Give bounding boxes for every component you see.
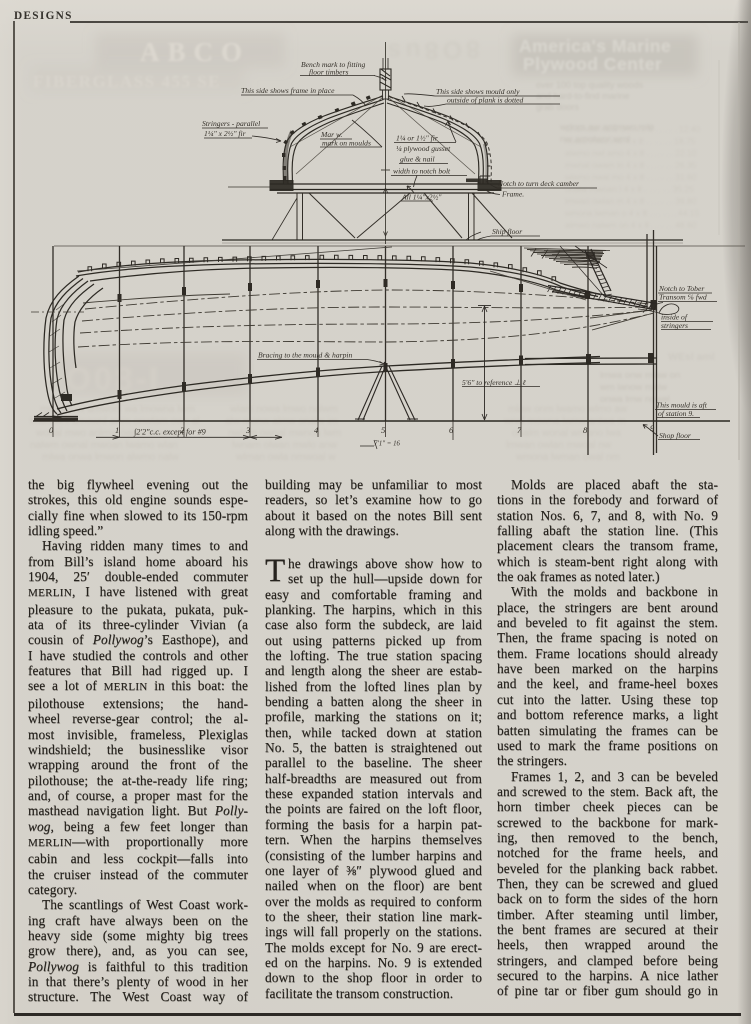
svg-text:lmwan owlan m 4 x 8 . . . . .: lmwan owlan m 4 x 8 . . . . . . 39.80 [565,196,697,206]
svg-text:5'6" to reference ⊥ ℓ: 5'6" to reference ⊥ ℓ [462,378,527,387]
svg-text:grab doors: grab doors [536,102,580,112]
svg-text:Frame.: Frame. [501,190,524,199]
svg-text:outside of plank is dotted: outside of plank is dotted [447,96,524,105]
svg-text:Notch to turn deck camber: Notch to turn deck camber [497,179,579,188]
svg-text:floor timbers: floor timbers [309,68,348,77]
svg-text:∫2'2"c.c. except for #9: ∫2'2"c.c. except for #9 [133,428,206,437]
svg-text:5: 5 [381,425,385,435]
svg-text:stringers: stringers [661,321,688,330]
svg-text:7'1" = 16: 7'1" = 16 [374,441,400,448]
svg-text:1¼ or 1½" fir: 1¼ or 1½" fir [396,134,438,143]
svg-text:wmona lwman owal nm: wmona lwman owal nm [515,452,620,463]
svg-text:wlam nowa lmwo nalwm: wlam nowa lmwo nalwm [229,404,338,415]
svg-text:nowal mwa lnw 4 x 8 . . . . .: nowal mwa lnw 4 x 8 . . . . . . 18.75 [565,136,696,146]
svg-text:8O8us: 8O8us [383,35,480,66]
svg-text:ABCO: ABCO [140,37,250,67]
svg-text:1¼" x 2½" fir: 1¼" x 2½" fir [204,129,246,138]
svg-text:¼ plywood gusset: ¼ plywood gusset [396,144,451,153]
svg-text:Transom ℅ fwd: Transom ℅ fwd [659,293,707,302]
svg-text:almwo nalwm on 4 x 8 . . . . .: almwo nalwm on 4 x 8 . . . . . 48.60 [565,220,697,230]
svg-text:onalm wonal wmano lwa: onalm wonal wmano lwa [512,428,621,439]
svg-text:mwnal owam ln 4 x 8 . . . . .: mwnal owam ln 4 x 8 . . . . . . 26.35 [565,160,697,170]
svg-text:alwmo nwl amo 4 x 8 . . . . .: alwmo nwl amo 4 x 8 . . . . . . 22.10 [565,148,697,158]
svg-text:This side shows frame in place: This side shows frame in place [241,86,335,95]
svg-text:3: 3 [245,425,250,435]
svg-text:glue & nail: glue & nail [400,155,435,164]
svg-text:nalwm ownal mwoan lwamo wlan: nalwm ownal mwoan lwamo wlan [30,440,178,451]
svg-text:mlwa onwa lmwon alwmo nalw: mlwa onwa lmwon alwmo nalw [42,452,179,463]
svg-text:WEsl aml: WEsl aml [668,351,715,363]
svg-text:Plywood Center: Plywood Center [523,54,662,74]
svg-text:All 1¼"x2½": All 1¼"x2½" [401,193,442,202]
svg-text:America's Marine: America's Marine [519,36,671,56]
svg-text:9: 9 [650,423,655,433]
svg-text:Ship floor: Ship floor [492,227,522,236]
svg-text:width to notch bolt: width to notch bolt [393,167,451,176]
svg-text:Bracing to the mould & harpin: Bracing to the mould & harpin [258,351,352,360]
svg-text:onalw mwoan l 4 x 8 . . . . .: onalw mwoan l 4 x 8 . . . . . . 35.25 [565,184,694,194]
svg-text:wlamo nwal mo 4 x 8 . . . . .: wlamo nwal mo 4 x 8 . . . . . . 31.60 [564,172,697,182]
svg-text:lmwa onw mlaw on: lmwa onw mlaw on [600,370,680,381]
svg-text:Shop floor: Shop floor [659,431,691,440]
svg-text:mark on moulds: mark on moulds [322,139,371,148]
svg-text:lmwan owlan mwoal nw: lmwan owlan mwoal nw [506,440,612,451]
svg-text:FIBERGLASS 455 SE: FIBERGLASS 455 SE [33,72,221,91]
svg-text:wl amow nalw om 4 x 8 . . . .: wl amow nalw om 4 x 8 . . . . . 12.40 [564,124,700,134]
svg-text:1: 1 [115,425,119,435]
svg-text:over 100 top quality woods: over 100 top quality woods [536,80,644,90]
svg-text:mlaw onm lwamo wlmo aw: mlaw onm lwamo wlmo aw [508,404,628,415]
svg-text:wlman owla nmwoal w: wlman owla nmwoal w [235,452,336,463]
svg-text:wmona lwman o 4 x 8 . . . . .: wmona lwman o 4 x 8 . . . . . . 44.15 [564,208,699,218]
svg-text:of station 9.: of station 9. [658,409,694,418]
svg-text:Stringers - parallel: Stringers - parallel [202,119,260,128]
svg-text:lwnam olwan mwlo anw: lwnam olwan mwlo anw [232,440,338,451]
